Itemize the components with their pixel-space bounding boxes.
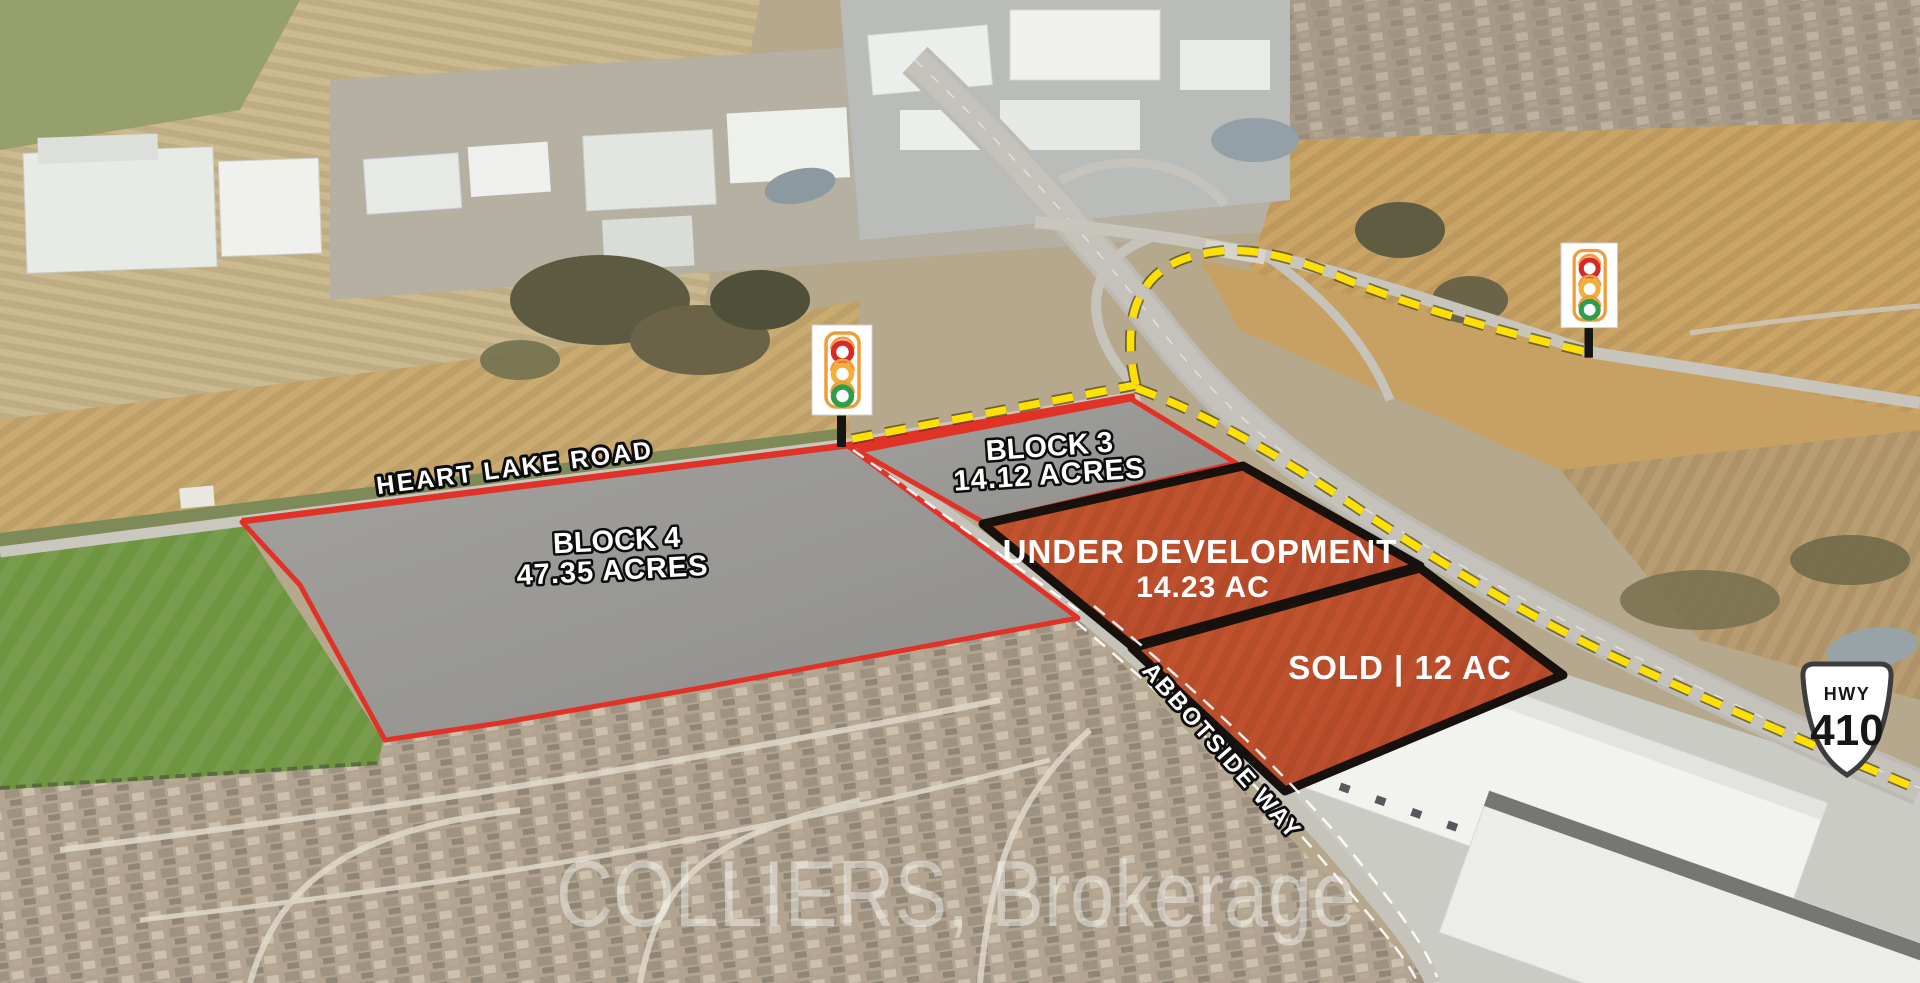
label-under-development: UNDER DEVELOPMENT (1003, 533, 1398, 570)
shield-hwy-text: HWY (1824, 684, 1871, 704)
signpost (837, 415, 846, 447)
aerial-map: HWY 410 COLLIERS, Brokerage HEART LAKE R… (0, 0, 1920, 983)
farm-building (179, 486, 215, 509)
signpost (1585, 328, 1593, 358)
label-under-development-area: 14.23 AC (1136, 571, 1270, 604)
aerial-map-canvas: HWY 410 COLLIERS, Brokerage HEART LAKE R… (0, 0, 1920, 983)
shield-number-text: 410 (1810, 706, 1883, 755)
pond (1211, 118, 1299, 162)
watermark: COLLIERS, Brokerage (556, 841, 1356, 946)
label-sold: SOLD | 12 AC (1288, 649, 1512, 686)
